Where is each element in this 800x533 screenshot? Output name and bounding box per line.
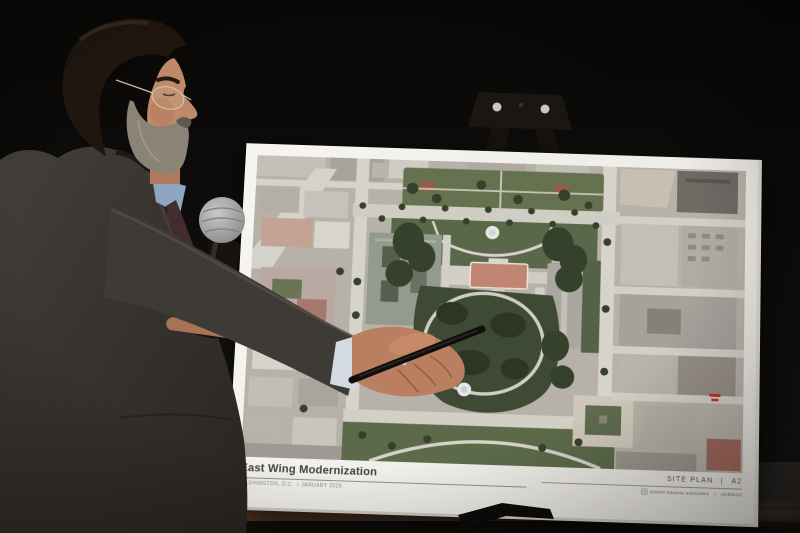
presenter [0,0,800,533]
photo-scene: East Wing Modernization WASHINGTON, D.C.… [0,0,800,533]
